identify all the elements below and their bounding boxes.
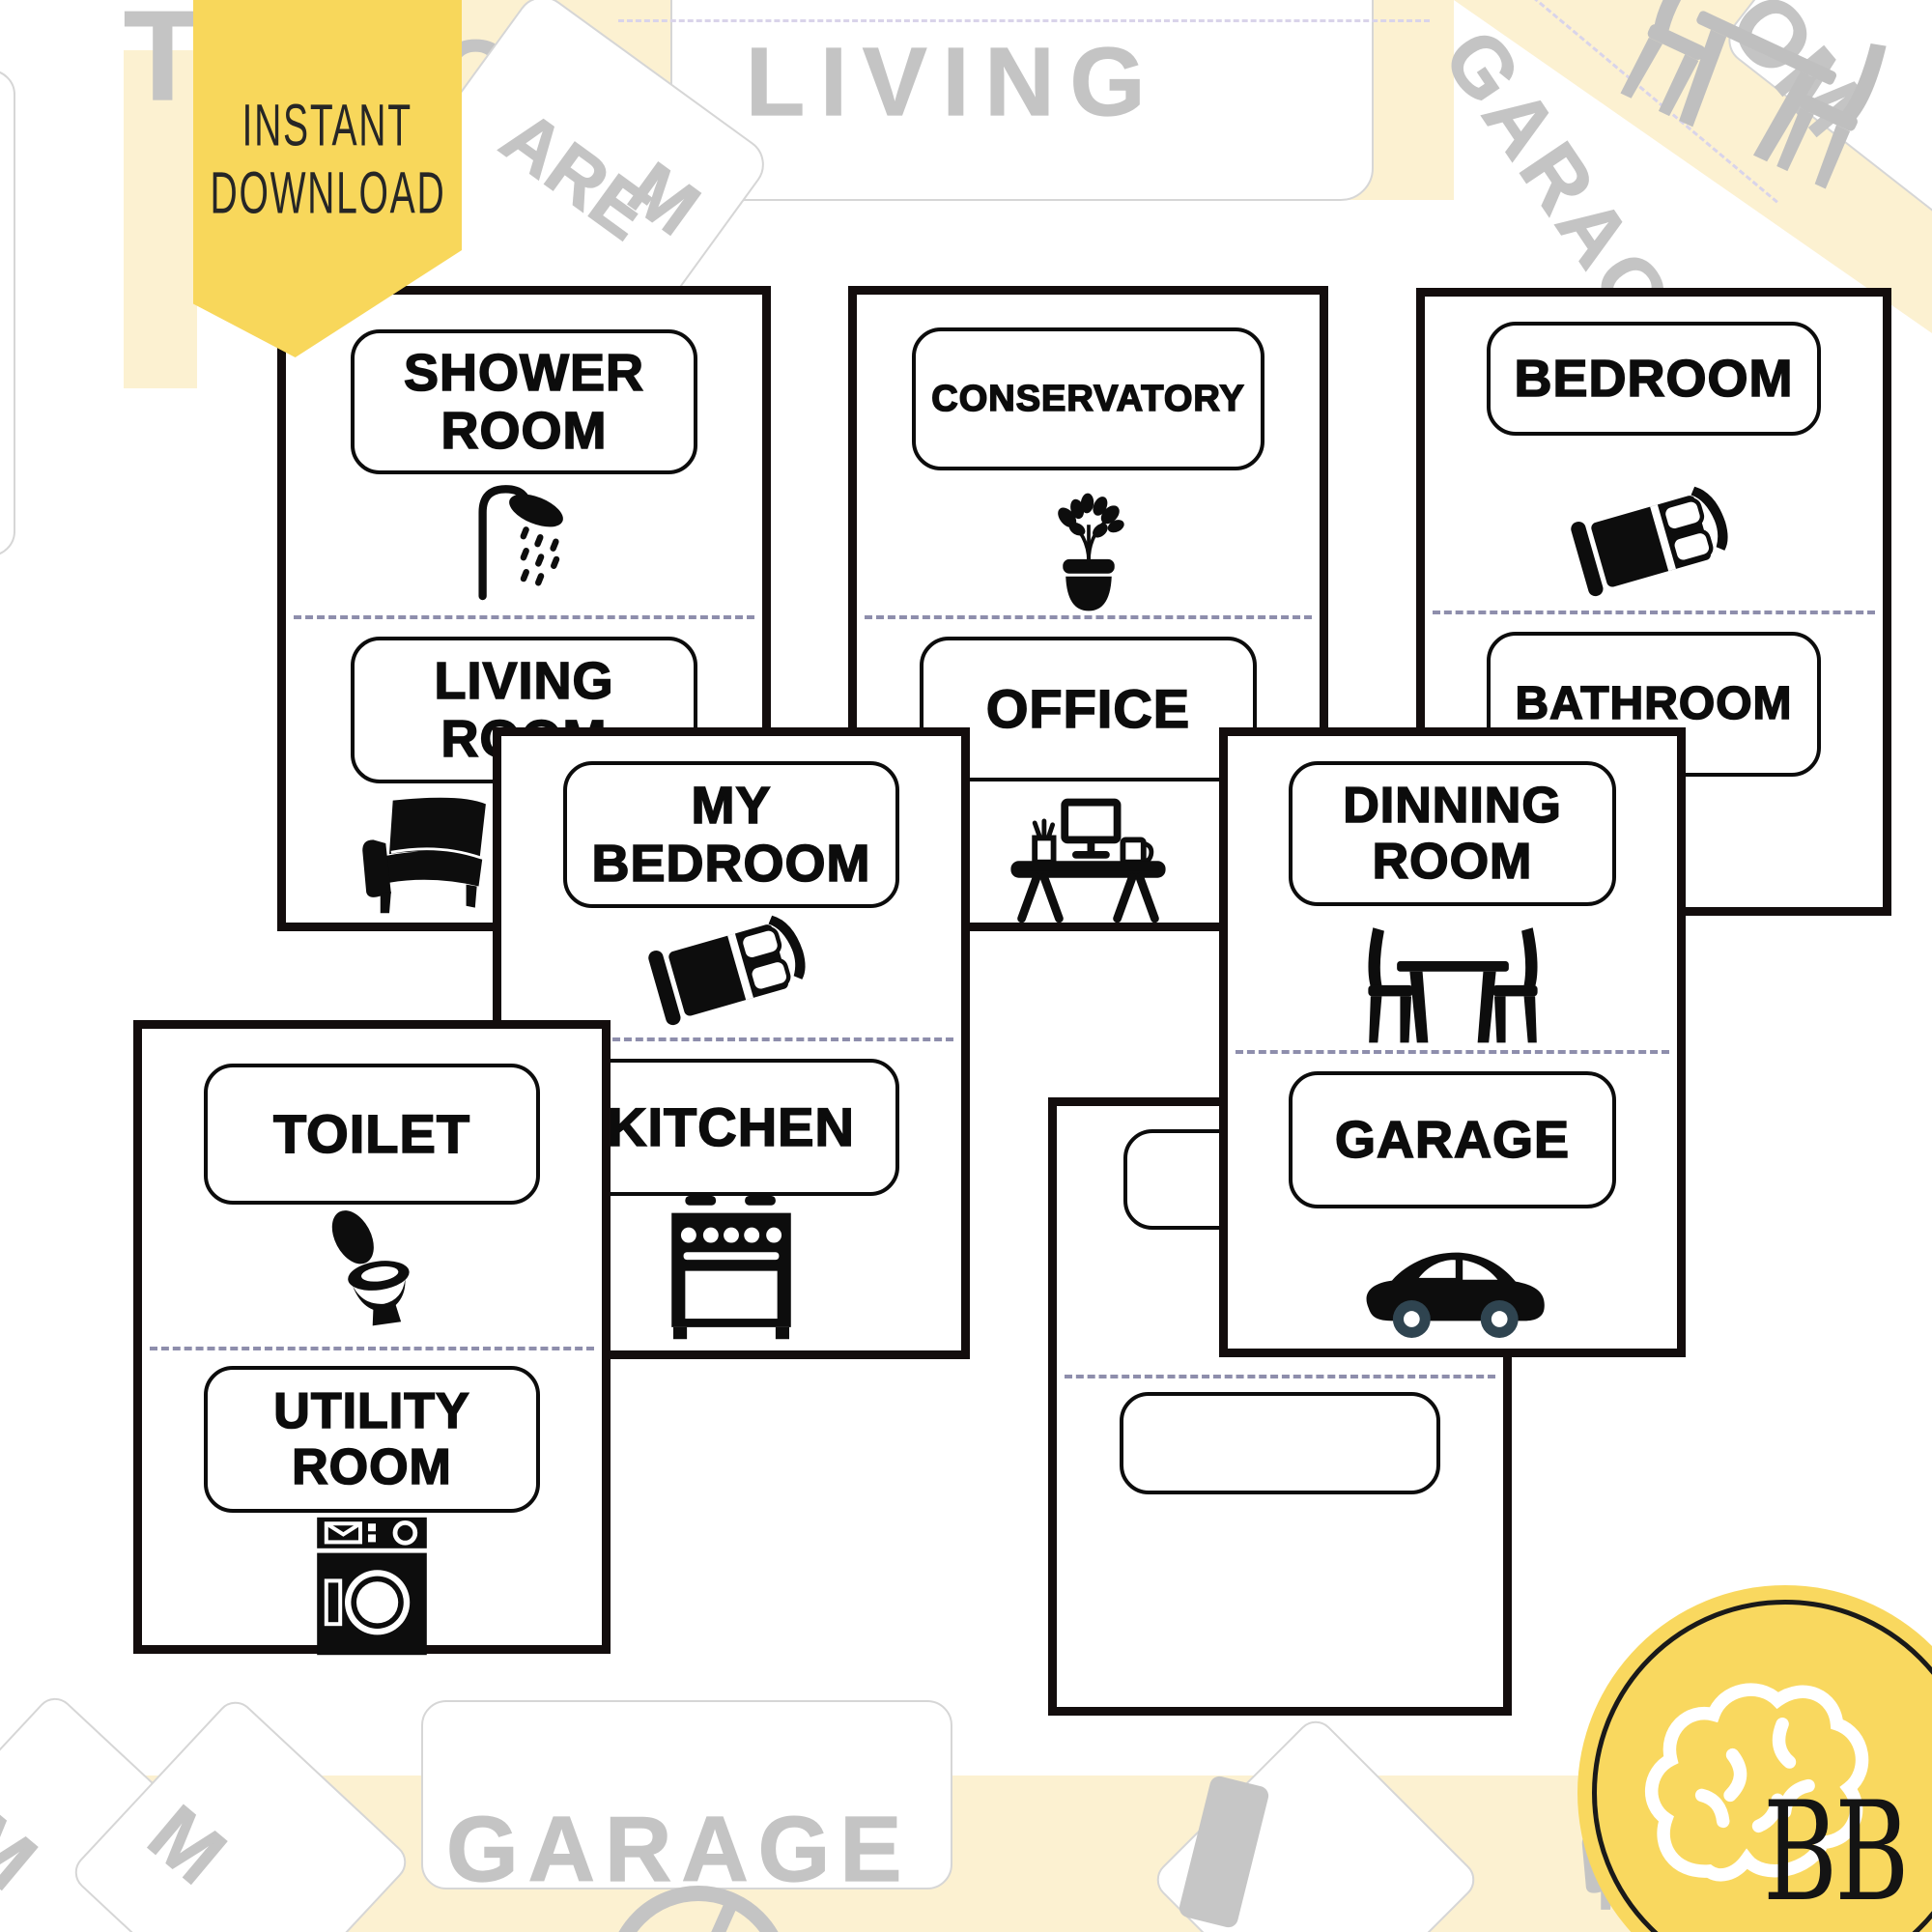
- room-label-box: MY BEDROOM: [563, 761, 898, 908]
- dining-table-icon: [1228, 906, 1677, 1050]
- room-label-box: GARAGE: [1289, 1071, 1616, 1208]
- shower-icon: [286, 474, 762, 615]
- room-label-text: OFFICE: [986, 679, 1190, 740]
- badge-line-2: DOWNLOAD: [210, 157, 445, 227]
- toilet-icon: [142, 1205, 602, 1359]
- room-label-box-blank: [1120, 1392, 1441, 1494]
- card-top-cell: CONSERVATORY: [857, 295, 1320, 615]
- potted-plant-icon: [857, 470, 1320, 615]
- logo-text: BB: [1763, 1773, 1907, 1932]
- watermark-text-living: LIVING: [746, 27, 1160, 138]
- room-label-box: TOILET: [204, 1064, 539, 1205]
- watermark-card-left-edge: [0, 70, 15, 556]
- room-label-text: SHOWER ROOM: [366, 344, 683, 461]
- room-label-text: GARAGE: [1335, 1111, 1570, 1169]
- card-top-cell: DINNING ROOM: [1228, 736, 1677, 1050]
- room-label-text: BEDROOM: [1514, 350, 1793, 408]
- room-label-box: BEDROOM: [1487, 322, 1821, 436]
- room-label-box: UTILITY ROOM: [204, 1366, 539, 1513]
- card-top-cell: BEDROOM: [1425, 297, 1883, 611]
- double-bed-icon: [501, 908, 961, 1037]
- flashcard-dinning-garage: DINNING ROOM GARAGE: [1219, 727, 1686, 1357]
- watermark-text-t: T: [124, 0, 202, 128]
- room-label-text: UTILITY ROOM: [219, 1383, 524, 1495]
- room-label-box: OFFICE: [920, 637, 1258, 781]
- card-bottom-cell: GARAGE: [1228, 1050, 1677, 1349]
- watermark-cut-line-top: [618, 19, 1430, 22]
- room-label-box: DINNING ROOM: [1289, 761, 1616, 906]
- room-label-text: KITCHEN: [608, 1097, 855, 1158]
- card-top-cell: MY BEDROOM: [501, 736, 961, 1037]
- card-bottom-cell: [1057, 1375, 1503, 1707]
- badge-line-1: INSTANT: [242, 90, 412, 159]
- washing-machine-icon: [142, 1513, 602, 1669]
- room-label-text: CONSERVATORY: [931, 379, 1245, 420]
- card-top-cell: SHOWER ROOM: [286, 295, 762, 615]
- double-bed-icon: [1425, 436, 1883, 611]
- room-label-text: BATHROOM: [1515, 678, 1792, 730]
- room-label-text: DINNING ROOM: [1304, 778, 1601, 890]
- empty-area: [1057, 1494, 1503, 1707]
- room-label-box: KITCHEN: [563, 1059, 898, 1196]
- flashcard-toilet-utility: TOILET UTILITY ROOM: [133, 1020, 611, 1654]
- card-top-cell: TOILET: [142, 1029, 602, 1347]
- car-icon: [1228, 1208, 1677, 1349]
- card-bottom-cell: UTILITY ROOM: [142, 1347, 602, 1645]
- brand-logo: BB: [1577, 1585, 1932, 1932]
- room-label-box: CONSERVATORY: [912, 327, 1264, 470]
- room-label-text: TOILET: [273, 1104, 470, 1165]
- room-label-box: SHOWER ROOM: [351, 329, 698, 474]
- room-label-text: MY BEDROOM: [579, 777, 883, 894]
- product-listing-image: T OM LIVING ARE M GARAG OM: [0, 0, 1932, 1932]
